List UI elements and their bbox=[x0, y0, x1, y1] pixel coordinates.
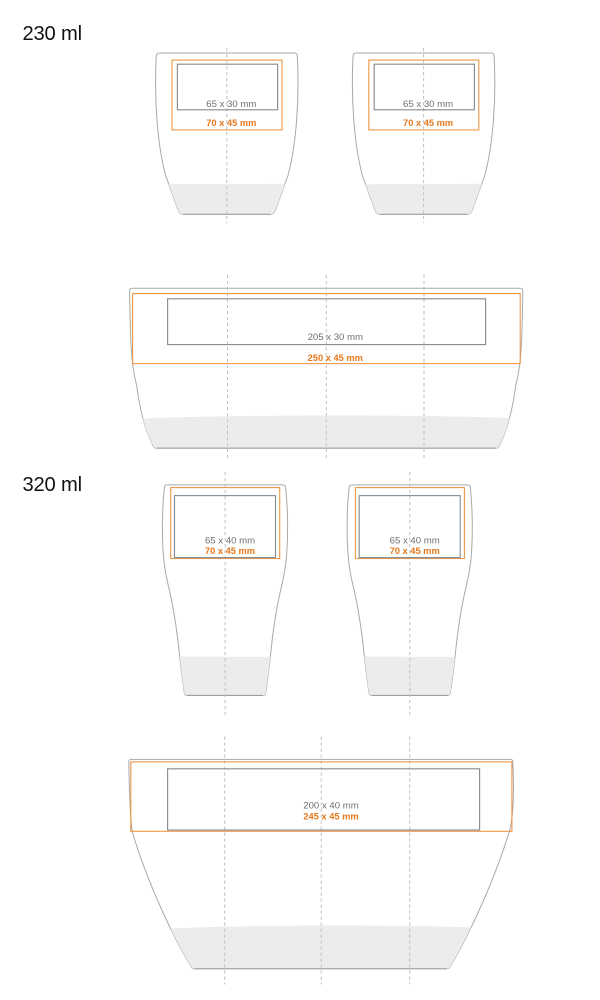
svg-text:65 x 30 mm: 65 x 30 mm bbox=[403, 99, 453, 110]
svg-text:70 x 45 mm: 70 x 45 mm bbox=[206, 118, 256, 128]
svg-text:70 x 45 mm: 70 x 45 mm bbox=[403, 118, 453, 128]
svg-text:230 ml: 230 ml bbox=[23, 23, 82, 45]
svg-text:205 x 30 mm: 205 x 30 mm bbox=[308, 332, 363, 343]
svg-text:320 ml: 320 ml bbox=[23, 474, 82, 496]
svg-text:70 x 45 mm: 70 x 45 mm bbox=[390, 546, 440, 556]
svg-text:200 x 40 mm: 200 x 40 mm bbox=[303, 801, 358, 812]
svg-text:65 x 30 mm: 65 x 30 mm bbox=[206, 99, 256, 110]
svg-text:70 x 45 mm: 70 x 45 mm bbox=[205, 546, 255, 556]
svg-text:245 x 45 mm: 245 x 45 mm bbox=[303, 811, 358, 821]
svg-text:250 x 45 mm: 250 x 45 mm bbox=[308, 353, 363, 363]
